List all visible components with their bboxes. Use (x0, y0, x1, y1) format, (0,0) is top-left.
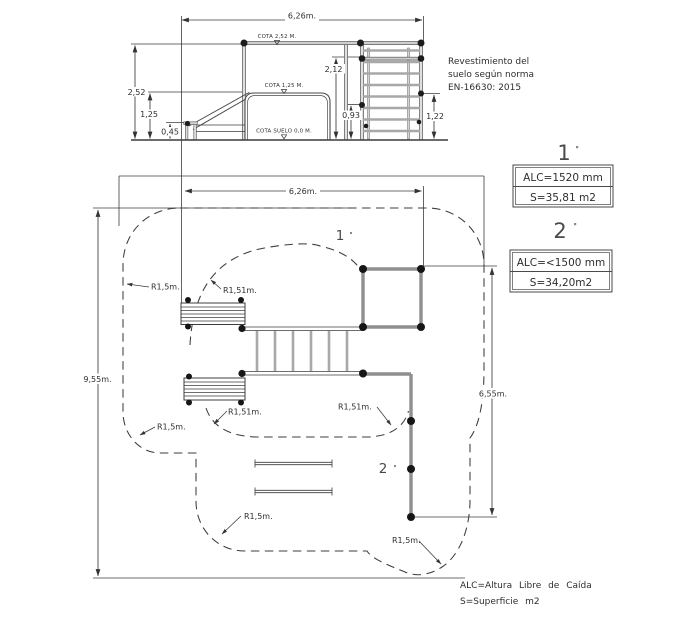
surface-note-line3: EN-16630: 2015 (448, 83, 521, 93)
dim-label-plan-right-height: 6,55m. (479, 389, 507, 398)
zone1-number: 1 (557, 141, 570, 165)
surface-note-line1: Revestimiento del (448, 57, 529, 67)
connector-ball (185, 121, 190, 126)
elevation-structure (131, 40, 448, 141)
tower-crossbar (362, 57, 421, 60)
zone1-info-panel: 1 ALC=1520 mm S=35,81 m2 (513, 141, 613, 207)
safety-area-outer-boundary (123, 208, 484, 575)
bench-top (181, 303, 245, 325)
technical-drawing: 6,26m. 2,52 1,25 0,45 2,12 0,93 1,22 COT… (0, 0, 700, 619)
cota-mid-label: COTA 1,25 M. (265, 83, 304, 89)
zone2-alc-value: ALC=<1500 mm (517, 257, 605, 269)
ladder-rungs (364, 51, 420, 132)
post (344, 43, 347, 140)
legend: ALC=Altura Libre de Caída S=Superficie m… (460, 581, 592, 607)
plan-view: 6,26m. 9,55m. 6,55m. R1,5m. R1,51m. R1,5… (82, 176, 509, 578)
zone2-number: 2 (553, 219, 566, 243)
surface-note-line2: suelo según norma (448, 70, 534, 80)
dim-label-plan-height: 9,55m. (83, 375, 111, 384)
legend-s: S=Superficie m2 (460, 597, 540, 607)
drawing-page: 6,26m. 2,52 1,25 0,45 2,12 0,93 1,22 COT… (0, 0, 700, 619)
radius-label-r151-upper: R1,51m. (223, 286, 257, 295)
plan-zone2-marker: 2 (379, 461, 388, 477)
square-platform (363, 269, 421, 327)
dim-label-platform-height: 0,45 (161, 128, 179, 137)
radius-label-r151-lower-left: R1,51m. (228, 408, 262, 417)
dim-label-bar-right: 1,22 (426, 112, 444, 121)
radius-label-r15-bottom-right: R1,5m. (392, 536, 421, 545)
cota-top-label: COTA 2,52 M. (258, 34, 297, 40)
side-rail (363, 374, 411, 517)
dim-label-bar-low: 0,93 (342, 111, 360, 120)
plan-reference-lines (93, 176, 497, 578)
radius-label-r15-bottom-left: R1,5m. (244, 512, 273, 521)
zone1-surface-value: S=35,81 m2 (530, 192, 596, 204)
zone1-alc-value: ALC=1520 mm (523, 172, 603, 184)
parallel-bars (255, 460, 332, 496)
radius-label-r15-upper-left: R1,5m. (151, 283, 180, 292)
elevation-view: 6,26m. 2,52 1,25 0,45 2,12 0,93 1,22 COT… (125, 11, 448, 304)
top-bar (244, 42, 422, 45)
legend-alc: ALC=Altura Libre de Caída (460, 581, 592, 591)
plan-zone1-marker: 1 (336, 228, 345, 244)
dim-label-elevation-width: 6,26m. (288, 12, 316, 21)
radius-label-r15-mid-left: R1,5m. (157, 423, 186, 432)
dim-label-mid-height: 1,25 (140, 110, 158, 119)
radius-labels: R1,5m. R1,51m. R1,51m. R1,51m. R1,5m. R1… (127, 280, 441, 564)
dim-label-total-height: 2,52 (128, 88, 146, 97)
zone1-number-dot (576, 146, 578, 148)
plan-zone1-marker-dot (350, 232, 352, 234)
cota-ground-label: COTA SUELO 0,0 M. (256, 129, 312, 135)
plan-zone2-marker-dot (394, 465, 396, 467)
surface-note: Revestimiento del suelo según norma EN-1… (448, 57, 534, 93)
bench-bottom (184, 378, 245, 400)
dim-label-plan-width: 6,26m. (289, 187, 317, 196)
radius-label-r151-lower-right: R1,51m. (338, 403, 372, 412)
zone2-surface-value: S=34,20m2 (530, 277, 592, 289)
zone2-number-dot (574, 223, 576, 225)
horizontal-ladder (242, 327, 363, 375)
zone2-info-panel: 2 ALC=<1500 mm S=34,20m2 (510, 219, 612, 292)
safety-area-boundaries (123, 208, 484, 575)
safety-area-inner-arc-top (190, 244, 364, 345)
dim-label-tower-height: 2,12 (325, 65, 343, 74)
plan-equipment (181, 265, 425, 521)
ramp (184, 93, 251, 141)
plan-dimensions: 6,26m. 9,55m. 6,55m. (82, 186, 509, 576)
